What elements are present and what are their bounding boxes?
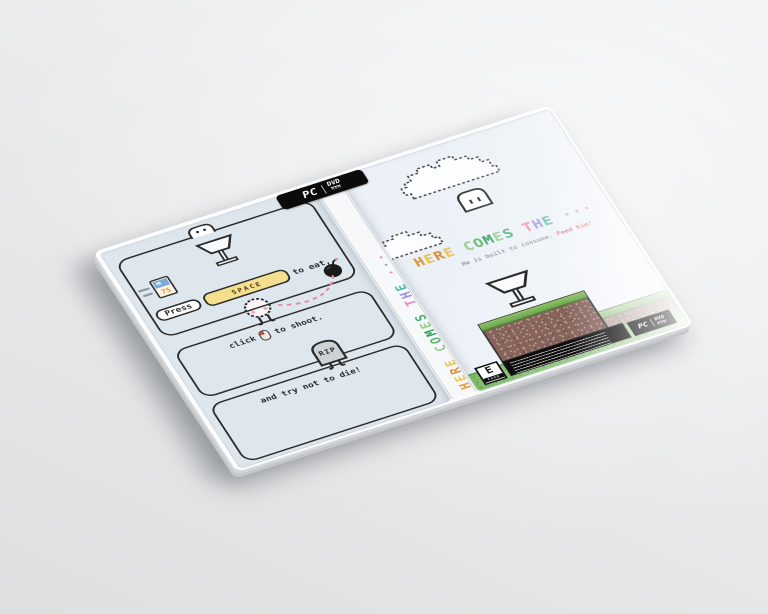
logo-divider [320,185,326,193]
photo-backdrop: 75 Press SPACE to eat, [0,0,768,614]
logo-divider [649,319,654,326]
pc-label: PC [300,186,321,200]
ghost-blob-character [451,184,496,214]
pc-label: PC [636,321,650,330]
